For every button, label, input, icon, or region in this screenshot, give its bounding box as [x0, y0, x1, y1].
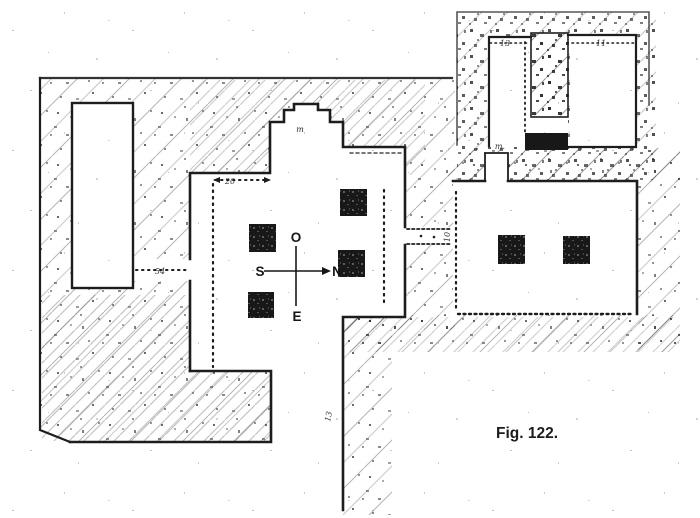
- dim-north-room-left: 13: [500, 39, 510, 48]
- pier-west-upper: [249, 224, 276, 252]
- corridor-dot: [420, 235, 423, 238]
- floor-plan-figure: O S N E 13 11 20 54 10 13 m m. Fig. 122.: [0, 0, 700, 518]
- figure-caption: Fig. 122.: [496, 425, 558, 442]
- dim-west-colonnade: 20: [224, 177, 235, 186]
- north-rooms-threshold-block: [525, 133, 568, 150]
- dim-west-corridor: 54: [155, 267, 165, 276]
- dim-east-corridor: 10: [443, 232, 452, 242]
- pier-west-lower: [248, 292, 274, 318]
- compass-top-label: O: [291, 230, 302, 245]
- compass-bottom-label: E: [292, 309, 301, 324]
- north-rooms-pier: [531, 33, 568, 117]
- compass-right-label: N: [332, 264, 342, 279]
- pier-east-hall-left: [498, 235, 525, 264]
- pier-east-lower: [338, 250, 365, 277]
- dim-north-room-right: 11: [596, 39, 606, 48]
- pier-east-upper: [340, 189, 367, 216]
- pier-east-hall-right: [563, 236, 590, 264]
- dim-apse: m: [296, 125, 304, 134]
- corridor-dot: [433, 236, 436, 239]
- scanned-figure-page: O S N E 13 11 20 54 10 13 m m. Fig. 122.: [0, 0, 700, 518]
- dim-porch: m.: [495, 142, 505, 151]
- compass-left-label: S: [255, 264, 264, 279]
